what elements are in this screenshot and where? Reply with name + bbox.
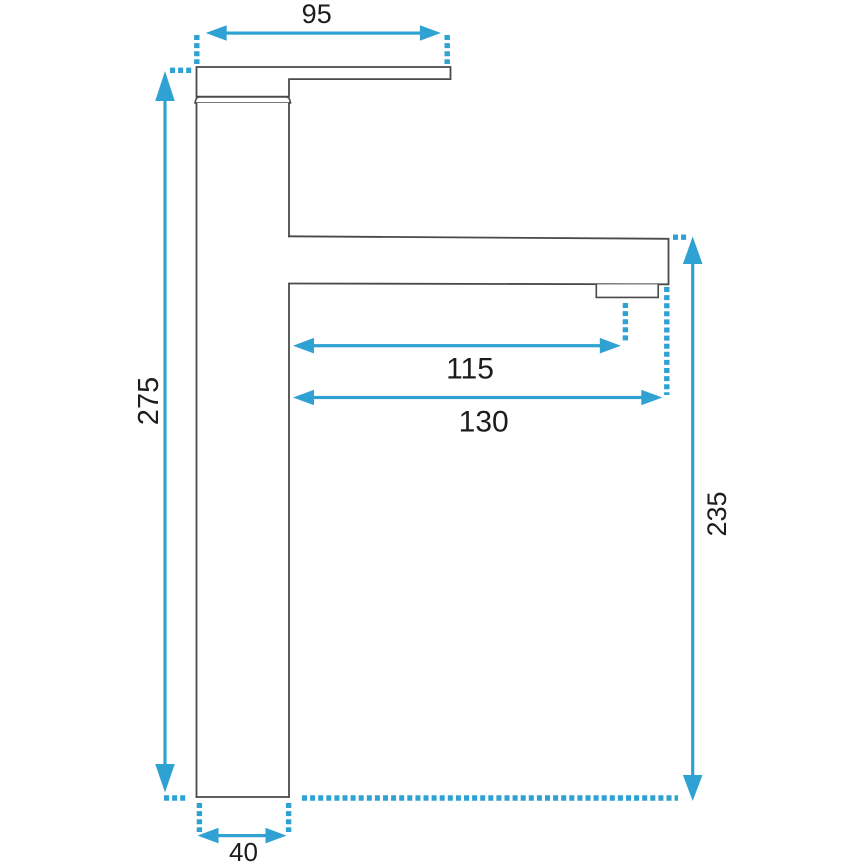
svg-text:275: 275 <box>133 377 165 425</box>
svg-text:130: 130 <box>459 406 509 439</box>
svg-text:115: 115 <box>446 353 494 386</box>
svg-text:235: 235 <box>702 491 732 536</box>
svg-text:95: 95 <box>302 0 332 29</box>
svg-text:40: 40 <box>229 837 258 867</box>
